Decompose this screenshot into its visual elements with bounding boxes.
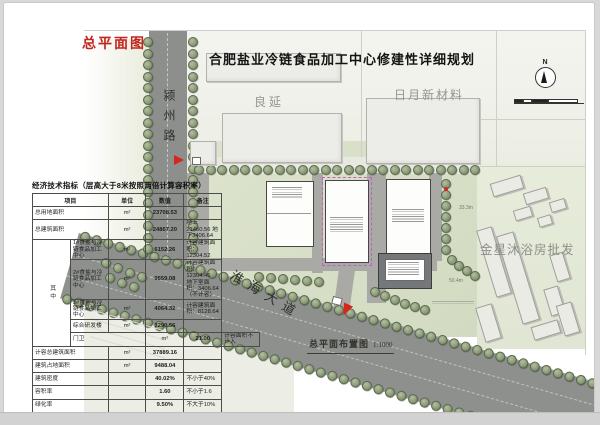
gatehouse-west [192,157,201,165]
plant-2-annotation [330,217,363,233]
table-unit-cell: m² [108,207,146,220]
table-value-cell: 6152.26 [146,240,184,260]
sheet-corner-title: 总平面图 [82,33,146,53]
table-value-cell: 9.50% [146,399,184,412]
table-note-cell [184,359,222,372]
scale-segment [548,99,578,104]
tree-icon [378,165,388,175]
tree-icon [303,363,315,375]
table-row: 总建筑面积m²24867.20地上21460.56 地下3406.64 [33,220,260,240]
table-note-cell: 不大于10% [184,399,222,412]
rd-annotation [388,262,419,275]
tree-icon [424,165,434,175]
table-row: 总用地面积m²23708.53 [33,207,260,220]
tree-icon [390,165,400,175]
tree-icon [441,234,451,244]
sheet-main-title: 合肥盐业冷链食品加工中心修建性详细规划 [209,49,475,68]
tree-icon [441,212,451,222]
tree-icon [194,165,204,175]
tree-icon [188,37,198,47]
table-row: 绿化率9.50%不大于10% [33,399,260,412]
tree-icon [529,360,541,372]
tree-icon [143,152,153,162]
tree-icon [470,165,480,175]
tree-icon [459,165,469,175]
tree-icon [552,367,564,379]
tree-icon [206,165,216,175]
table-unit-cell: m² [108,220,146,240]
tree-icon [407,393,419,405]
tree-icon [188,60,198,70]
table-value-cell: 40.02% [146,373,184,386]
tree-icon [302,276,312,286]
table-item-cell: 总建筑面积 [33,220,109,240]
tree-icon [441,223,451,233]
table-note-cell [184,346,222,359]
tree-icon [395,390,407,402]
table-item-cell: 容积率 [33,386,109,399]
table-note-cell [184,207,222,220]
table-unit-cell [108,386,146,399]
tree-icon [188,72,198,82]
tree-icon [332,165,342,175]
econ-table: 项目单位数值备注 总用地面积m²23708.53总建筑面积m²24867.20地… [32,193,260,415]
table-unit-cell: m² [108,319,146,332]
table-item-cell: 建筑占地面积 [33,359,109,372]
table-note-cell: 不小于1.6 [184,386,222,399]
table-item-cell: 绿化率 [33,399,109,412]
tree-icon [252,165,262,175]
econ-table-body: 总用地面积m²23708.53总建筑面积m²24867.20地上21460.56… [33,207,260,416]
economic-indicator-panel: 经济技术指标（层高大于8米按照两倍计算容积率） 项目单位数值备注 总用地面积m²… [32,180,262,415]
table-value-cell: 3290.56 [146,319,184,332]
boundary-line [496,31,497,166]
tree-icon [372,383,384,395]
tree-icon [143,129,153,139]
table-note-cell: 计容建筑面积：12304.52 [184,240,222,260]
scale-bar [514,99,584,104]
tree-icon [441,201,451,211]
tree-icon [143,60,153,70]
plant-1-annotation [272,187,302,199]
tree-icon [240,165,250,175]
tree-icon [321,165,331,175]
tree-icon [188,83,198,93]
tree-icon [143,118,153,128]
table-row: 计容总建筑面积m²37889.16 [33,346,260,359]
north-compass: N [524,59,566,88]
scale-segment [523,99,532,104]
tree-icon [143,164,153,174]
tree-icon [338,373,350,385]
table-header: 备注 [184,194,222,207]
tree-icon [563,370,575,382]
tree-icon [459,340,471,352]
plan-sheet: 总平面图 合肥盐业冷链食品加工中心修建性详细规划 颍州路 淮海大道 良延 日月新… [3,2,595,415]
tree-icon [217,165,227,175]
table-unit-cell: m² [146,333,184,347]
table-note-cell [184,319,222,332]
tree-icon [229,165,239,175]
liangyan-building [222,113,342,163]
table-header: 数值 [146,194,184,207]
table-item-cell: 建筑密度 [33,373,109,386]
dimension-label: 33.3m [459,205,473,211]
tree-icon [298,165,308,175]
table-note-cell: 不小于40% [184,373,222,386]
tree-icon [266,273,276,283]
tree-icon [188,129,198,139]
plant-1-divider [267,213,311,214]
table-value-cell: 9559.08 [146,260,184,299]
tree-icon [410,302,420,312]
scale-segment [532,99,548,104]
tree-icon [540,364,552,376]
tree-icon [380,291,390,301]
table-item-cell: 门卫 [70,333,146,347]
tree-icon [441,190,451,200]
boundary-line [478,119,586,120]
plan-caption: 总平面布置图1:1000 [307,334,394,354]
tree-icon [367,165,377,175]
tree-icon [436,165,446,175]
table-value-cell: 9488.04 [146,359,184,372]
tree-icon [188,106,198,116]
tree-icon [483,347,495,359]
table-row: 其中1#食盐与冷链食品加工中心m²6152.26计容建筑面积：12304.52 [33,240,260,260]
riyue-building [366,98,480,164]
tree-icon [418,396,430,408]
window-bottom-edge [0,412,600,425]
tree-icon [420,305,430,315]
scale-segment [514,99,523,104]
tree-icon [263,165,273,175]
table-note-cell: 计容面积不计入 [222,333,260,347]
boundary-line [585,31,586,355]
table-note-cell: 计容建筑面积：8128.64 [184,299,222,319]
table-header: 项目 [33,194,109,207]
table-value-cell: 23708.53 [146,207,184,220]
tree-icon [575,374,587,386]
table-unit-cell: m² [108,359,146,372]
tree-icon [494,350,506,362]
neighbor-label-riyue: 日月新材料 [394,86,464,103]
table-item-cell: 计容总建筑面积 [33,346,109,359]
tree-icon [188,95,198,105]
compass-needle-icon [541,71,547,83]
table-item-cell: 1#食盐与冷链食品加工中心 [70,240,108,260]
tree-icon [401,165,411,175]
tree-icon [448,337,460,349]
table-unit-cell: m² [108,299,146,319]
tree-icon [315,366,327,378]
tree-icon [430,400,442,412]
tree-icon [143,106,153,116]
table-row: 建筑占地面积m²9488.04 [33,359,260,372]
tree-icon [400,299,410,309]
table-unit-cell: m² [108,260,146,299]
tree-icon [506,354,518,366]
table-unit-cell: m² [108,240,146,260]
table-value-cell: 37889.16 [146,346,184,359]
table-note-cell: 地上21460.56 地下3406.64 [184,220,222,240]
tree-icon [143,72,153,82]
table-value-cell: 4064.32 [146,299,184,319]
table-title: 经济技术指标（层高大于8米按照两倍计算容积率） [32,180,262,191]
tree-icon [309,165,319,175]
caption-scale: 1:1000 [373,341,392,349]
econ-table-head: 项目单位数值备注 [33,194,260,207]
entrance-dot-east [444,187,448,191]
entrance-arrow-west [174,155,184,165]
tree-icon [344,165,354,175]
tree-icon [314,277,324,287]
table-row: 建筑密度40.02%不小于40% [33,373,260,386]
tree-icon [470,271,480,281]
table-header: 单位 [108,194,146,207]
dimension-label: 50.4m [449,278,463,284]
road-label-yingzhou: 颍州路 [161,89,178,149]
north-label: N [524,59,566,66]
tree-icon [355,165,365,175]
tree-icon [188,118,198,128]
neighbor-label-liangyan: 良延 [254,93,284,110]
compass-icon [535,67,556,88]
caption-text: 总平面布置图 [309,339,369,349]
tree-icon [290,275,300,285]
tree-icon [349,376,361,388]
table-note-cell: 计容建筑面积：12304.46 地下室面积：3406.64（不计容） [184,260,222,299]
tree-icon [517,357,529,369]
tree-icon [286,165,296,175]
tree-icon [384,386,396,398]
table-value-cell: 1.60 [146,386,184,399]
table-row: 容积率1.60不小于1.6 [33,386,260,399]
neighbor-label-jinxing: 金星沐浴房批发 [480,239,575,258]
tree-icon [586,377,595,389]
tree-icon [143,95,153,105]
table-item-cell: 总用地面积 [33,207,109,220]
table-unit-cell [108,373,146,386]
table-item-cell: 综合研发楼 [70,319,108,332]
tree-icon [413,165,423,175]
table-value-cell: 21.00 [184,333,222,347]
tree-icon [326,370,338,382]
tree-icon [143,141,153,151]
tree-icon [143,83,153,93]
tree-icon [441,245,451,255]
screenshot-stage: 总平面图 合肥盐业冷链食品加工中心修建性详细规划 颍州路 淮海大道 良延 日月新… [0,0,600,425]
tree-icon [188,49,198,59]
table-unit-cell: m² [108,346,146,359]
table-unit-cell [108,399,146,412]
tree-icon [275,165,285,175]
plant-3-annotation [392,209,424,223]
tree-icon [361,380,373,392]
table-group-cell: 其中 [33,240,71,346]
table-item-cell: 2#食盐与冷链食品加工中心 [70,260,108,299]
lawn-annotation [432,301,474,306]
tree-icon [390,295,400,305]
tree-icon [278,274,288,284]
tree-icon [447,165,457,175]
table-value-cell: 24867.20 [146,220,184,240]
table-item-cell: 3#食盐与冷链食品加工中心 [70,299,108,319]
